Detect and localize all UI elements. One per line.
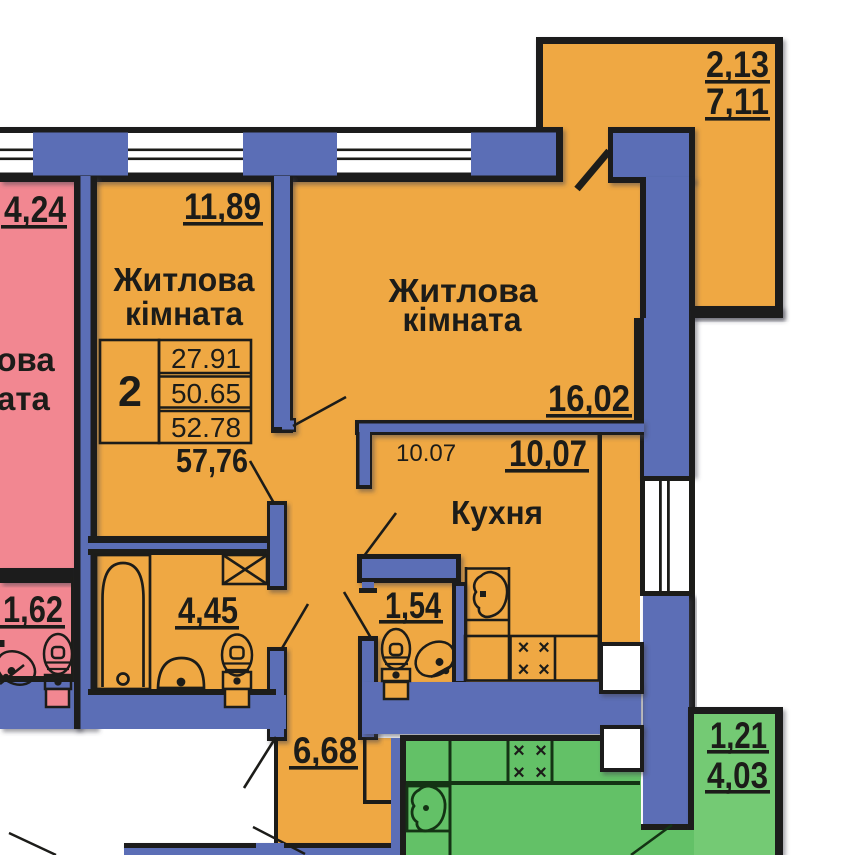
svg-text:57,76: 57,76 — [176, 442, 248, 479]
svg-text:50.65: 50.65 — [171, 378, 241, 409]
svg-text:7,11: 7,11 — [706, 81, 769, 122]
svg-text:кімната: кімната — [0, 380, 51, 417]
svg-text:×: × — [518, 637, 530, 659]
svg-text:1,21: 1,21 — [710, 715, 767, 756]
svg-text:4,24: 4,24 — [4, 189, 66, 230]
svg-text:16,02: 16,02 — [548, 378, 630, 419]
svg-text:×: × — [535, 740, 547, 762]
svg-text:×: × — [513, 740, 525, 762]
svg-text:кімната: кімната — [403, 301, 523, 338]
svg-text:×: × — [518, 659, 530, 681]
svg-text:×: × — [538, 637, 550, 659]
svg-text:1,62: 1,62 — [3, 589, 63, 630]
svg-text:×: × — [535, 762, 547, 784]
svg-text:10,07: 10,07 — [509, 433, 587, 474]
svg-text:Житлова: Житлова — [113, 261, 256, 298]
svg-text:1,54: 1,54 — [385, 585, 441, 626]
svg-text:27.91: 27.91 — [171, 343, 241, 374]
svg-text:2: 2 — [118, 368, 142, 416]
svg-text:11,89: 11,89 — [184, 186, 261, 227]
svg-text:4,45: 4,45 — [178, 590, 238, 631]
svg-text:Кухня: Кухня — [451, 494, 543, 531]
svg-text:10.07: 10.07 — [396, 440, 456, 467]
svg-text:6,68: 6,68 — [293, 730, 357, 771]
svg-text:52.78: 52.78 — [171, 412, 241, 443]
svg-text:×: × — [538, 659, 550, 681]
svg-text:×: × — [513, 762, 525, 784]
svg-text:4,03: 4,03 — [707, 755, 768, 796]
svg-text:Житлова: Житлова — [0, 341, 55, 378]
svg-text:кімната: кімната — [125, 295, 244, 332]
svg-text:2,13: 2,13 — [706, 44, 769, 85]
